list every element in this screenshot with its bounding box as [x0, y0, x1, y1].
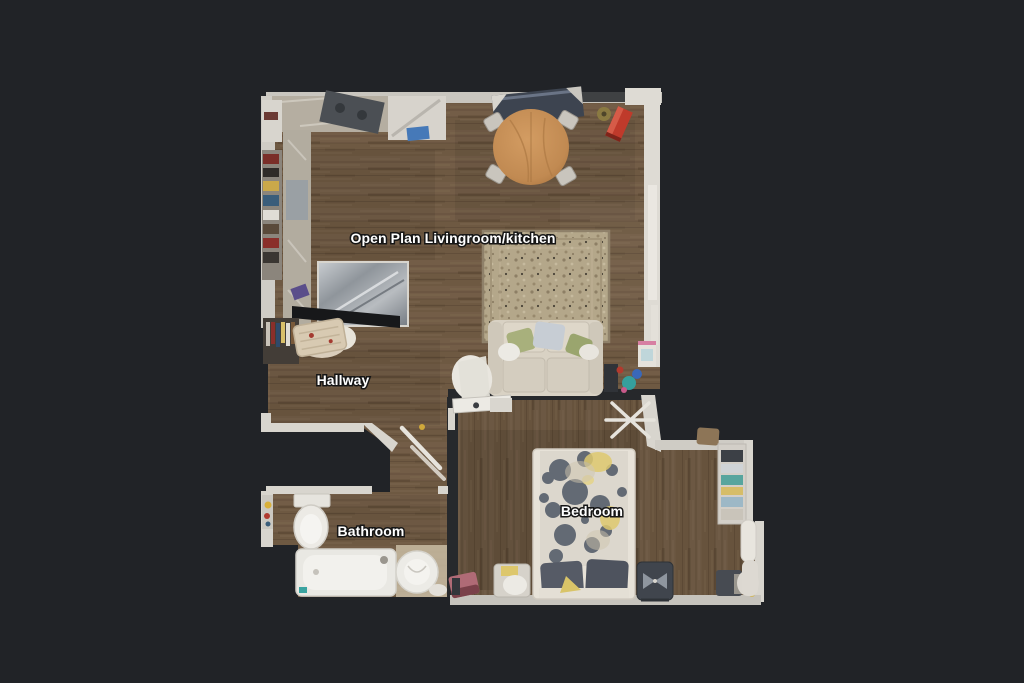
toilet: [294, 494, 330, 549]
bed: [533, 449, 635, 599]
bedside-chair: [494, 564, 530, 597]
label-bedroom[interactable]: Bedroom: [561, 503, 623, 519]
white-cloth: [458, 356, 490, 400]
label-bathroom[interactable]: Bathroom: [338, 523, 405, 539]
shoe-rack: [263, 318, 299, 364]
wardrobe: [718, 444, 746, 524]
left-shelf-items: [262, 100, 282, 280]
blue-folder: [406, 126, 429, 141]
bathtub: [296, 549, 396, 596]
box-right-wall: [638, 341, 656, 367]
rolled-mat: [741, 520, 758, 596]
bathroom-shelf-items: [262, 495, 273, 529]
floorplan-svg: Open Plan Livingroom/kitchen Hallway Bat…: [0, 0, 1024, 683]
sofa: [488, 320, 603, 396]
floorplan-viewer-canvas[interactable]: Open Plan Livingroom/kitchen Hallway Bat…: [0, 0, 1024, 683]
office-chair: [637, 562, 673, 600]
small-desk: [490, 398, 512, 412]
radiator: [648, 185, 657, 300]
stool: [696, 427, 719, 445]
label-hallway[interactable]: Hallway: [317, 372, 370, 388]
label-open-plan-livingroom-kitchen[interactable]: Open Plan Livingroom/kitchen: [350, 230, 555, 246]
